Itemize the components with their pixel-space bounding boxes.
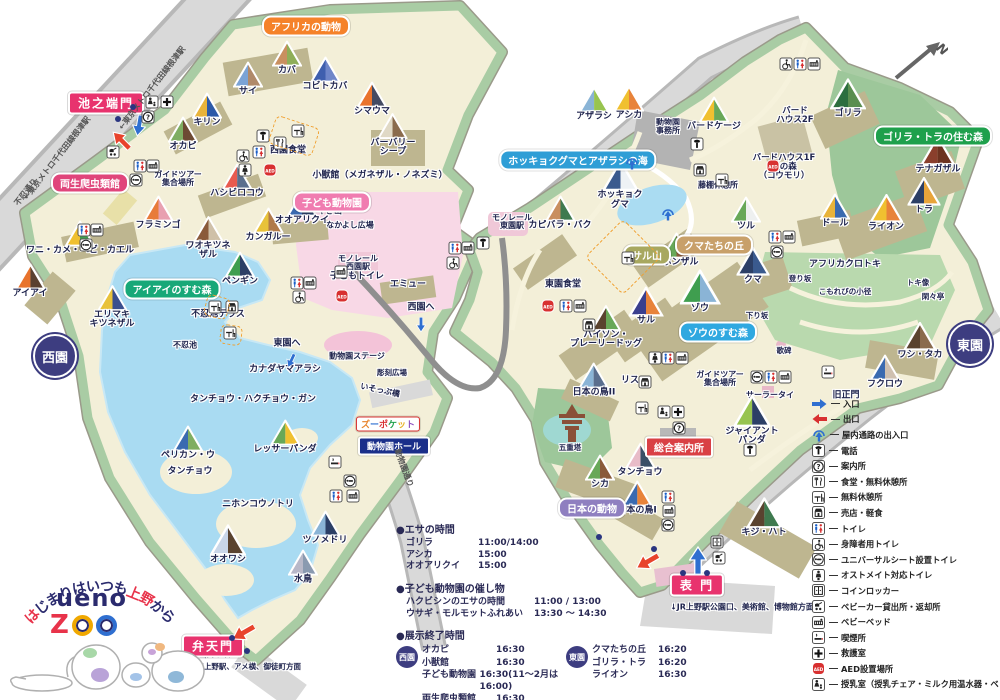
map-marker-label: レッサーパンダ [253, 446, 316, 455]
map-marker-label: 歌碑 [777, 347, 792, 355]
map-marker: 小獣館（メガネザル・ノネズミ） [312, 172, 447, 181]
map-marker-label: ホッキョクグマ [597, 191, 642, 210]
map-marker: アザラシ [576, 87, 612, 122]
legend-label: ベビーカー貸出所・返却所 [841, 601, 941, 613]
map-marker: こもれびの小径 [819, 288, 872, 296]
legend-label: オストメイト対応トイレ [841, 569, 932, 581]
legend-dash [829, 684, 838, 685]
map-marker: 登り坂 [789, 275, 812, 283]
map-marker-label: カンガルー [245, 234, 290, 243]
smoking-icon [812, 631, 825, 644]
universal-icon [771, 246, 784, 259]
map-marker: コビトカバ [302, 57, 347, 92]
legend-label: 屋内通路の出入口 [842, 429, 908, 441]
babybed-icon [783, 231, 796, 244]
map-marker-label: エミュー [390, 281, 426, 290]
toilet-icon [769, 231, 782, 244]
legend-row: 出口 [812, 412, 998, 428]
map-marker: 閑々亭 [922, 293, 945, 301]
map-marker: タンチョウ・ハクチョウ・ガン [190, 396, 316, 405]
animal-triangle-icon [830, 78, 866, 109]
map-marker: アイアイ [12, 264, 47, 299]
map-marker-label: シカ [591, 481, 609, 490]
shop-icon [812, 506, 825, 519]
universal-icon [344, 475, 357, 488]
zone-circle: 東園 [948, 322, 992, 366]
restarea-icon [812, 491, 825, 504]
zone-badge: 東園 [566, 646, 588, 668]
legend-dash [831, 403, 840, 404]
map-marker: ハシビロコウ [210, 164, 264, 199]
area-banner: 両生爬虫類館 [51, 173, 129, 194]
map-marker: 不忍池 [173, 342, 197, 350]
closing-west: 西園オカピ16:30小獣館16:30子ども動物園16:30(11～2月は16:0… [396, 644, 566, 700]
phone-icon [691, 138, 704, 151]
map-marker: 動物園事務所 [656, 119, 680, 136]
phone-icon [812, 444, 825, 457]
animal-triangle-icon [622, 481, 652, 507]
universal-icon [130, 174, 143, 187]
animal-triangle-icon [731, 197, 761, 223]
toilet-icon [330, 490, 343, 503]
legend-dash [829, 466, 838, 467]
closing-row: 小獣館16:30 [422, 657, 566, 669]
closing-row: 両生爬虫類館16:30 [422, 693, 566, 700]
babybed-icon [335, 266, 348, 279]
firstaid-icon [161, 96, 174, 109]
animal-triangle-icon [15, 264, 45, 290]
legend-label: 喫煙所 [841, 632, 866, 644]
map-marker-label: アイアイ [12, 290, 47, 299]
phone-icon [477, 237, 490, 250]
map-marker-label: ハシビロコウ [210, 190, 264, 199]
wheelchair-icon [293, 291, 306, 304]
map-marker: タンチョウ [167, 468, 212, 477]
map-marker-label: サイ [239, 88, 257, 97]
nursing-icon [812, 678, 825, 691]
legend-dash [829, 590, 838, 591]
legend-row: 救護室 [812, 646, 998, 662]
map-marker: いそっぷ橋 [360, 383, 401, 400]
animal-triangle-icon [143, 196, 173, 222]
feeding-row: オオアリクイ15:00 [406, 561, 716, 573]
legend-dash [829, 668, 838, 669]
closing-row: オカピ16:30 [422, 644, 566, 656]
entry-dot [130, 104, 136, 110]
map-marker-label: 下り坂 [746, 312, 769, 320]
map-marker: ガイドツアー集合場所 [154, 171, 202, 188]
feeding-rows: ゴリラ11:00/14:00アシカ15:00オオアリクイ15:00 [406, 538, 716, 573]
map-marker-label: フクロウ [867, 381, 903, 390]
map-marker: キジ・ハト [741, 497, 786, 538]
phone-icon [744, 444, 757, 457]
entry-dot [229, 635, 235, 641]
locker-icon [812, 584, 825, 597]
toilet-icon [253, 146, 266, 159]
animal-triangle-icon [310, 511, 340, 537]
animal-triangle-icon [579, 87, 609, 113]
feeding-row: ゴリラ11:00/14:00 [406, 538, 716, 550]
closing-rows: オカピ16:30小獣館16:30子ども動物園16:30(11～2月は16:00)… [422, 644, 566, 700]
legend-label: ユニバーサルシート設置トイレ [841, 554, 957, 566]
dashed-rest-area [585, 219, 661, 295]
map-marker-label: タンチョウ [167, 468, 212, 477]
legend-label: トイレ [841, 523, 866, 535]
map-marker: オカピ [168, 117, 198, 152]
toilet-icon [662, 491, 675, 504]
map-marker: エミュー [390, 281, 426, 290]
toilet-icon [560, 300, 573, 313]
map-marker: バードハウス2F [776, 107, 813, 125]
map-legend: 入口出口屋内通路の出入口電話?案内所食堂・無料休憩所無料休憩所売店・軽食トイレ身… [812, 396, 998, 692]
map-marker-label: 西園へ [407, 304, 434, 313]
info-icon: ? [142, 111, 155, 124]
area-banner: ゾウのすむ森 [679, 322, 757, 343]
map-marker-label: アシカ [616, 112, 643, 121]
shop-banner: ズーポケット [356, 417, 420, 432]
map-marker-label: バードハウス2F [776, 107, 813, 125]
map-marker: ニホンコウノトリ [222, 501, 294, 510]
legend-row: ベビーベッド [812, 614, 998, 630]
animal-triangle-icon [869, 194, 902, 223]
babybed-icon [304, 277, 317, 290]
map-marker: トキ像 [907, 279, 930, 287]
babybed-icon [779, 371, 792, 384]
toilet-icon [449, 242, 462, 255]
legend-label: 身障者用トイレ [841, 538, 899, 550]
legend-dash [829, 622, 838, 623]
svg-text:?: ? [816, 463, 820, 471]
closing-row: ライオン16:30 [592, 669, 687, 681]
map-marker: トラ [908, 177, 941, 215]
map-marker: フラミンゴ [135, 196, 180, 231]
area-banner: アイアイのすむ森 [124, 279, 221, 300]
legend-row: オストメイト対応トイレ [812, 568, 998, 584]
map-marker-label: ガイドツアー集合場所 [154, 171, 202, 188]
map-marker-label: 登り坂 [789, 275, 812, 283]
map-marker: ツノメドリ [302, 511, 347, 546]
restarea-icon [636, 402, 649, 415]
map-marker: モノレール東園駅 [492, 214, 532, 231]
babybed-icon [808, 58, 821, 71]
firstaid-icon [672, 406, 685, 419]
animal-triangle-icon [310, 57, 340, 83]
phone-icon [257, 130, 270, 143]
map-marker-label: バーバリーシープ [371, 139, 416, 158]
map-marker-label: リス [621, 377, 639, 386]
map-marker-label: 水鳥 [294, 576, 312, 585]
animal-triangle-icon [746, 497, 782, 528]
legend-row: 屋内通路の出入口 [812, 427, 998, 443]
svg-text:?: ? [677, 425, 681, 433]
dashed-rest-area [219, 324, 244, 347]
zone-badge: 西園 [396, 646, 418, 668]
map-marker: リス [621, 377, 639, 386]
restarea-icon [716, 174, 729, 187]
legend-label: 救護室 [841, 647, 866, 659]
ostomate-icon [239, 164, 252, 177]
map-marker: シマウマ [354, 82, 390, 117]
map-marker-label: ニホンコウノトリ [222, 501, 294, 510]
map-marker-label: ペンギン [222, 278, 258, 287]
children-events-title: ●子ども動物園の催し物 [396, 580, 716, 595]
map-marker: 歌碑 [777, 347, 792, 355]
compass-north: N [888, 36, 948, 86]
closing-title: ●展示終了時間 [396, 627, 716, 642]
legend-row: 電話 [812, 443, 998, 459]
legend-label: 入口 [843, 398, 860, 410]
indoor-passage-arrow-icon [625, 156, 639, 170]
ostomate-icon [649, 352, 662, 365]
legend-dash [830, 434, 839, 435]
map-marker-label: 東園食堂 [545, 281, 581, 290]
stroller-icon [812, 600, 825, 613]
babybed-icon [91, 224, 104, 237]
map-marker: レッサーパンダ [253, 420, 316, 455]
map-marker-label: バードハウス1F夜の森（コウモリ） [753, 154, 816, 181]
map-marker-label: なかよし広場 [326, 222, 374, 230]
legend-dash [829, 450, 838, 451]
map-marker: ライオン [868, 194, 904, 232]
legend-dash [829, 559, 838, 560]
feeding-title: ●エサの時間 [396, 521, 716, 536]
map-marker: バードケージ [687, 97, 741, 132]
stroller-icon [107, 146, 120, 159]
area-banner: クマたちの丘 [675, 235, 753, 256]
zone-circle: 西園 [33, 334, 77, 378]
map-marker-label: ライオン [868, 223, 904, 232]
map-marker-label: ガイドツアー集合場所 [696, 371, 744, 388]
map-marker-label: こもれびの小径 [819, 288, 872, 296]
legend-dash [829, 528, 838, 529]
map-marker-label: カバ [278, 67, 296, 76]
map-marker-label: 閑々亭 [922, 293, 945, 301]
map-marker-label: タンチョウ [617, 469, 662, 478]
children-event-rows: ハクビシンのエサの時間11:00 / 13:00ウサギ・モルモットふれあい13:… [406, 597, 716, 620]
legend-row: 授乳室（授乳チェア・ミルク用温水器・ベビーベッド） [812, 677, 998, 693]
legend-dash [829, 575, 838, 576]
animal-triangle-icon [699, 97, 729, 123]
legend-row: 喫煙所 [812, 630, 998, 646]
toilet-icon [812, 522, 825, 535]
map-marker-label: いそっぷ橋 [360, 383, 401, 400]
children-event-row: ウサギ・モルモットふれあい13:30 ～ 14:30 [406, 609, 716, 621]
legend-row: トイレ [812, 521, 998, 537]
legend-dash [829, 544, 838, 545]
wheelchair-icon [812, 538, 825, 551]
shop-icon [694, 164, 707, 177]
children-event-row: ハクビシンのエサの時間11:00 / 13:00 [406, 597, 716, 609]
svg-text:AED: AED [543, 304, 553, 309]
map-marker-label: 五重塔 [559, 444, 582, 452]
aed-icon: AED [336, 290, 349, 303]
map-marker-label: オオアリクイ [275, 217, 329, 226]
babybed-icon [347, 490, 360, 503]
animal-triangle-icon [272, 41, 302, 67]
animal-triangle-icon [545, 196, 575, 222]
map-marker: 東園食堂 [545, 281, 581, 290]
map-marker-label: トラ [915, 206, 933, 215]
svg-text:?: ? [146, 114, 150, 122]
aed-icon: AED [542, 300, 555, 313]
ueno-zoo-map: サイカバコビトカバシマウマキリンオカピバーバリーシープ小獣館（メガネザル・ノネズ… [0, 0, 1000, 700]
closing-row: クマたちの丘16:20 [592, 644, 687, 656]
map-marker-label: 東園へ [273, 340, 300, 349]
map-marker: バードハウス1F夜の森（コウモリ） [753, 154, 816, 181]
nursing-icon [658, 406, 671, 419]
animal-triangle-icon [908, 177, 941, 206]
map-marker-label: オカピ [169, 143, 196, 152]
logo-animal-doodles [8, 625, 218, 700]
closing-rows: クマたちの丘16:20ゴリラ・トラ16:20ライオン16:30 [592, 644, 687, 680]
legend-label: 出口 [843, 413, 860, 425]
animal-triangle-icon [173, 426, 203, 452]
map-marker: 彫刻広場 [377, 369, 407, 377]
map-marker: ゴリラ [830, 78, 866, 119]
map-marker: シカ [585, 455, 615, 490]
area-banner: 子ども動物園 [293, 192, 371, 213]
wheelchair-icon [447, 257, 460, 270]
map-marker: 日本の鳥II [573, 363, 616, 398]
babybed-icon [812, 616, 825, 629]
map-marker: ゾウ [680, 269, 721, 314]
animal-triangle-icon [733, 395, 771, 428]
map-marker-label: 日本の鳥II [573, 389, 616, 398]
legend-row: コインロッカー [812, 583, 998, 599]
map-marker: 五重塔 [559, 444, 582, 452]
map-marker-label: ツル [737, 223, 755, 232]
aed-icon: AED [767, 160, 780, 173]
svg-text:AED: AED [814, 667, 824, 672]
feeding-row: アシカ15:00 [406, 550, 716, 562]
map-marker-label: トキ像 [907, 279, 930, 287]
logo-ueno-text: ueno [56, 584, 127, 612]
legend-dash [829, 653, 838, 654]
map-marker-label: 動物園ステージ [329, 353, 385, 361]
map-marker: ガイドツアー集合場所 [696, 371, 744, 388]
legend-dash [829, 606, 838, 607]
animal-triangle-icon [288, 550, 318, 576]
toilet-icon [291, 277, 304, 290]
smoking-icon [329, 456, 342, 469]
entry-dot [244, 648, 250, 654]
area-banner: ゴリラ・トラの住む森 [874, 126, 992, 147]
aed-icon: AED [264, 164, 277, 177]
map-marker: ドール [820, 194, 850, 229]
toilet-icon [78, 224, 91, 237]
gate-arrow-icon [416, 317, 426, 332]
map-marker-label: タンチョウ・ハクチョウ・ガン [190, 396, 316, 405]
legend-dash [829, 637, 838, 638]
animal-triangle-icon [270, 420, 300, 446]
area-banner: アフリカの動物 [262, 16, 350, 37]
map-marker: アシカ [614, 86, 644, 121]
animal-triangle-icon [97, 285, 127, 311]
legend-dash [829, 512, 838, 513]
animal-triangle-icon [903, 322, 936, 351]
schedule-panel: ●エサの時間 ゴリラ11:00/14:00アシカ15:00オオアリクイ15:00… [396, 514, 716, 700]
shop-icon [583, 319, 596, 332]
animal-triangle-icon [378, 113, 408, 139]
nursing-icon [146, 96, 159, 109]
animal-triangle-icon [579, 363, 609, 389]
legend-row: ?案内所 [812, 458, 998, 474]
map-marker-label: テナガザル [915, 166, 960, 175]
map-marker-label: ワシ・タカ [897, 351, 942, 360]
animal-triangle-icon [193, 216, 223, 242]
closing-columns: 西園オカピ16:30小獣館16:30子ども動物園16:30(11～2月は16:0… [396, 644, 716, 700]
babybed-icon [676, 352, 689, 365]
legend-row: 無料休憩所 [812, 490, 998, 506]
map-marker-label: アザラシ [576, 113, 612, 122]
ostomate-icon [812, 569, 825, 582]
indoor-icon [812, 428, 826, 442]
animal-triangle-icon [870, 355, 900, 381]
toilet-icon [662, 352, 675, 365]
map-marker: ペンギン [222, 252, 258, 287]
wheelchair-icon [237, 150, 250, 163]
legend-row: ユニバーサルシート設置トイレ [812, 552, 998, 568]
legend-label: AED設置場所 [841, 663, 893, 675]
info-icon: ? [812, 460, 825, 473]
closing-row: 子ども動物園16:30(11～2月は16:00) [422, 669, 566, 693]
map-marker: 水鳥 [288, 550, 318, 585]
map-marker-label: モノレール東園駅 [492, 214, 532, 231]
map-marker: なかよし広場 [326, 222, 374, 230]
firstaid-icon [812, 647, 825, 660]
legend-row: 売店・軽食 [812, 505, 998, 521]
map-marker-label: ゴリラ [834, 110, 861, 119]
map-marker-label: ドール [821, 220, 848, 229]
map-marker-label: バードケージ [687, 123, 741, 132]
map-marker-label: アフリカクロトキ [809, 261, 881, 270]
map-marker: ペリカン・ウ [161, 426, 215, 461]
legend-label: コインロッカー [841, 585, 899, 597]
babybed-icon [462, 242, 475, 255]
svg-text:AED: AED [265, 168, 275, 173]
map-marker: ツル [731, 197, 761, 232]
map-marker: フクロウ [867, 355, 903, 390]
universal-icon [751, 371, 764, 384]
legend-row: 身障者用トイレ [812, 536, 998, 552]
map-marker: バーバリーシープ [371, 113, 416, 158]
area-banner: 総合案内所 [645, 437, 713, 458]
map-marker: 動物園ステージ [329, 353, 385, 361]
svg-text:AED: AED [768, 164, 778, 169]
svg-text:AED: AED [337, 294, 347, 299]
universal-icon [80, 239, 93, 252]
restaurant-icon [812, 475, 825, 488]
legend-row: 食堂・無料休憩所 [812, 474, 998, 490]
map-marker-label: ゾウ [691, 305, 709, 314]
map-marker: サイ [233, 62, 263, 97]
map-marker: ジャイアントパンダ [725, 395, 778, 446]
map-marker-label: ツノメドリ [302, 537, 347, 546]
animal-triangle-icon [820, 194, 850, 220]
map-marker: アフリカクロトキ [809, 261, 881, 270]
closing-row: ゴリラ・トラ16:20 [592, 657, 687, 669]
map-marker-label: バイソン・プレーリードッグ [570, 331, 642, 350]
map-marker: カバ [272, 41, 302, 76]
map-marker-label: 小獣館（メガネザル・ノネズミ） [312, 172, 447, 181]
legend-row: AEDAED設置場所 [812, 661, 998, 677]
legend-row: ベビーカー貸出所・返却所 [812, 599, 998, 615]
map-marker-label: 彫刻広場 [377, 369, 407, 377]
map-marker-label: 動物園事務所 [656, 119, 680, 136]
info-icon: ? [673, 422, 686, 435]
universal-icon [812, 553, 825, 566]
indoor-passage-arrow-icon [661, 207, 675, 221]
